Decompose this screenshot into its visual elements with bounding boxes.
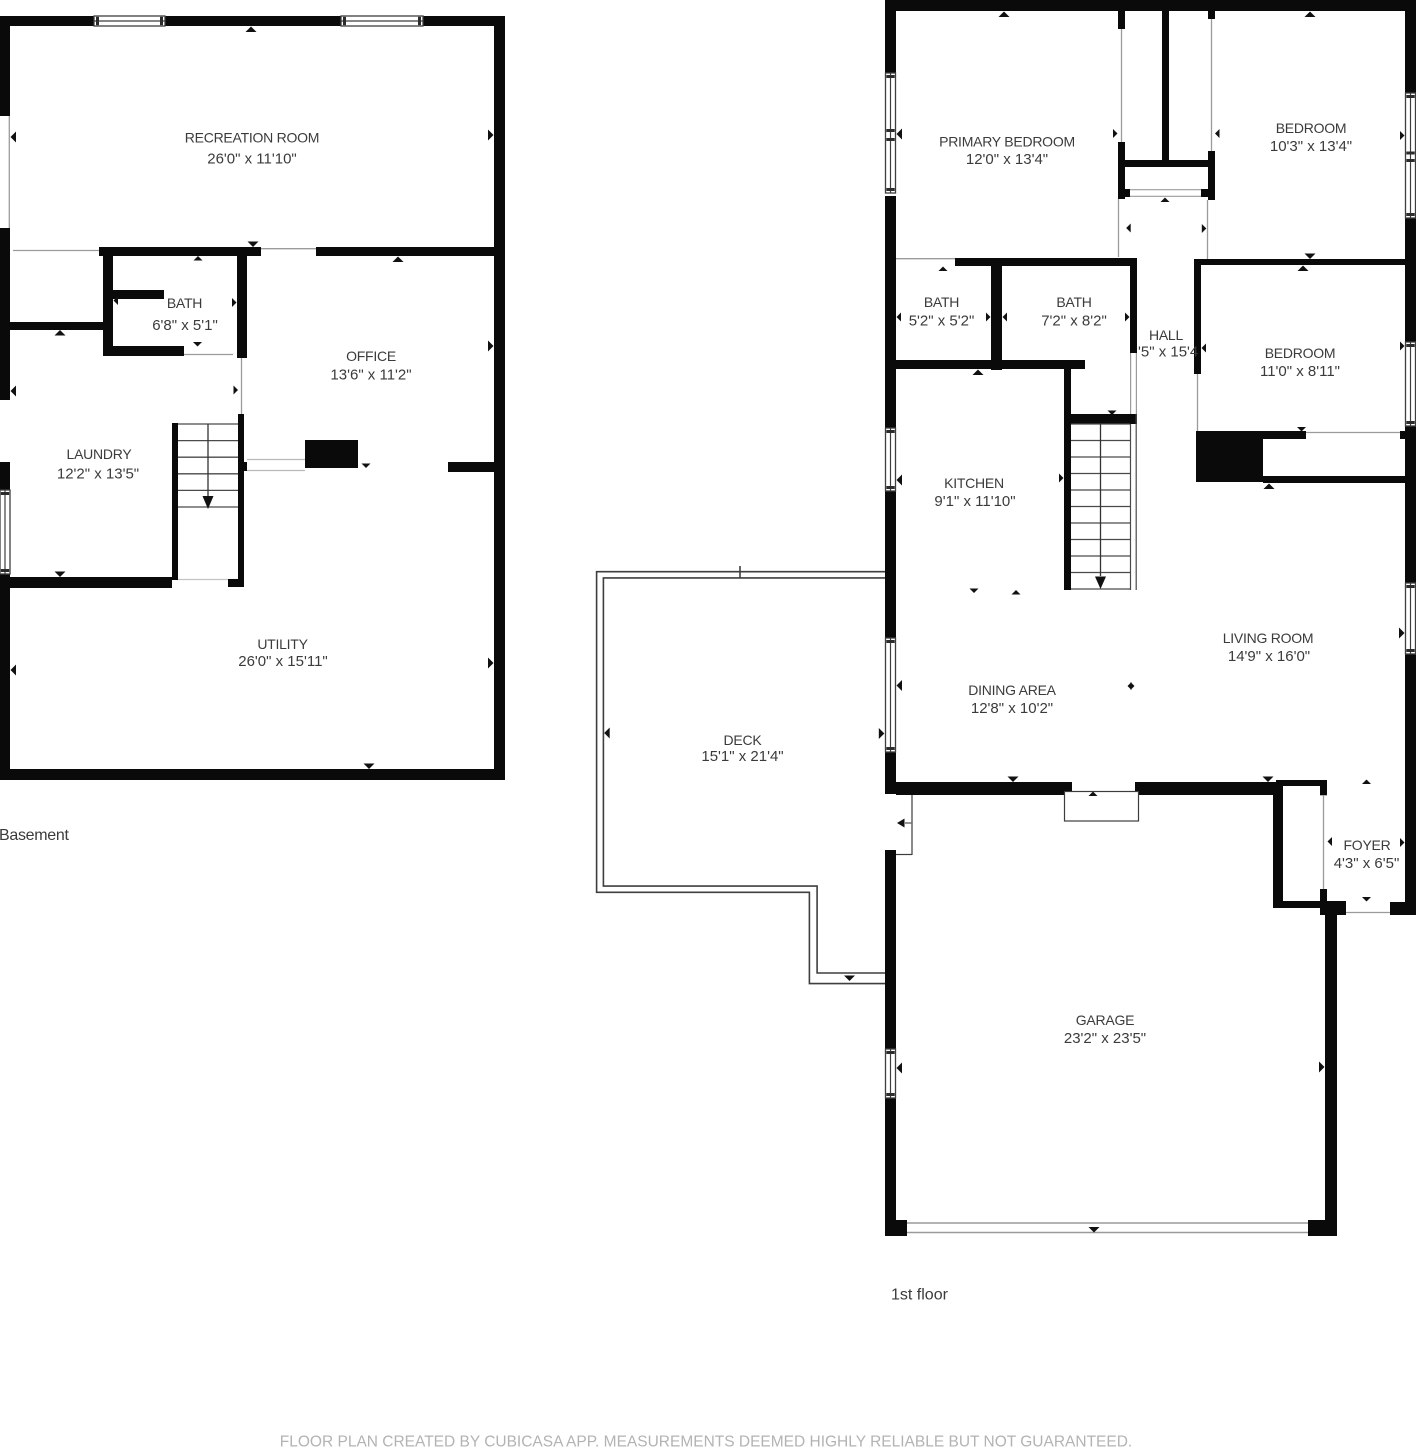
svg-text:23'2" x 23'5": 23'2" x 23'5" xyxy=(1064,1030,1146,1047)
svg-text:10'3" x 13'4": 10'3" x 13'4" xyxy=(1270,138,1352,155)
svg-text:UTILITY: UTILITY xyxy=(257,636,308,652)
svg-text:15'1" x 21'4": 15'1" x 21'4" xyxy=(701,748,783,765)
svg-text:LIVING ROOM: LIVING ROOM xyxy=(1223,630,1314,646)
svg-text:12'0" x 13'4": 12'0" x 13'4" xyxy=(966,151,1048,168)
svg-text:DECK: DECK xyxy=(724,732,763,748)
svg-text:PRIMARY BEDROOM: PRIMARY BEDROOM xyxy=(939,134,1075,150)
svg-text:12'8" x 10'2": 12'8" x 10'2" xyxy=(971,700,1053,717)
svg-text:RECREATION ROOM: RECREATION ROOM xyxy=(185,130,319,146)
svg-text:14'9" x 16'0": 14'9" x 16'0" xyxy=(1228,648,1310,665)
svg-text:6'8" x 5'1": 6'8" x 5'1" xyxy=(152,317,218,334)
svg-text:BEDROOM: BEDROOM xyxy=(1276,120,1347,136)
svg-text:LAUNDRY: LAUNDRY xyxy=(67,446,133,462)
svg-text:13'6" x 11'2": 13'6" x 11'2" xyxy=(330,367,411,384)
svg-text:FOYER: FOYER xyxy=(1344,837,1391,853)
svg-text:Basement: Basement xyxy=(0,827,69,844)
svg-text:4'3" x 6'5": 4'3" x 6'5" xyxy=(1334,855,1400,872)
svg-text:1st floor: 1st floor xyxy=(891,1287,949,1304)
svg-text:12'2" x 13'5": 12'2" x 13'5" xyxy=(57,466,139,483)
svg-text:FLOOR PLAN CREATED BY CUBICASA: FLOOR PLAN CREATED BY CUBICASA APP. MEAS… xyxy=(280,1434,1132,1451)
svg-text:11'0" x 8'11": 11'0" x 8'11" xyxy=(1260,363,1340,380)
svg-text:5'2" x 5'2": 5'2" x 5'2" xyxy=(909,313,975,330)
svg-text:HALL: HALL xyxy=(1149,327,1183,343)
svg-text:26'0" x 15'11": 26'0" x 15'11" xyxy=(238,653,328,670)
svg-text:KITCHEN: KITCHEN xyxy=(944,475,1004,491)
svg-text:9'1" x 11'10": 9'1" x 11'10" xyxy=(934,493,1015,510)
svg-text:BEDROOM: BEDROOM xyxy=(1265,345,1336,361)
svg-text:BATH: BATH xyxy=(924,294,959,310)
svg-text:BATH: BATH xyxy=(1056,294,1091,310)
svg-text:'5" x 15'4: '5" x 15'4 xyxy=(1138,344,1198,361)
svg-text:26'0" x 11'10": 26'0" x 11'10" xyxy=(207,151,297,168)
svg-text:7'2" x 8'2": 7'2" x 8'2" xyxy=(1041,313,1107,330)
svg-text:OFFICE: OFFICE xyxy=(346,348,396,364)
svg-text:DINING AREA: DINING AREA xyxy=(968,682,1056,698)
svg-text:GARAGE: GARAGE xyxy=(1076,1012,1134,1028)
svg-text:BATH: BATH xyxy=(167,295,202,311)
